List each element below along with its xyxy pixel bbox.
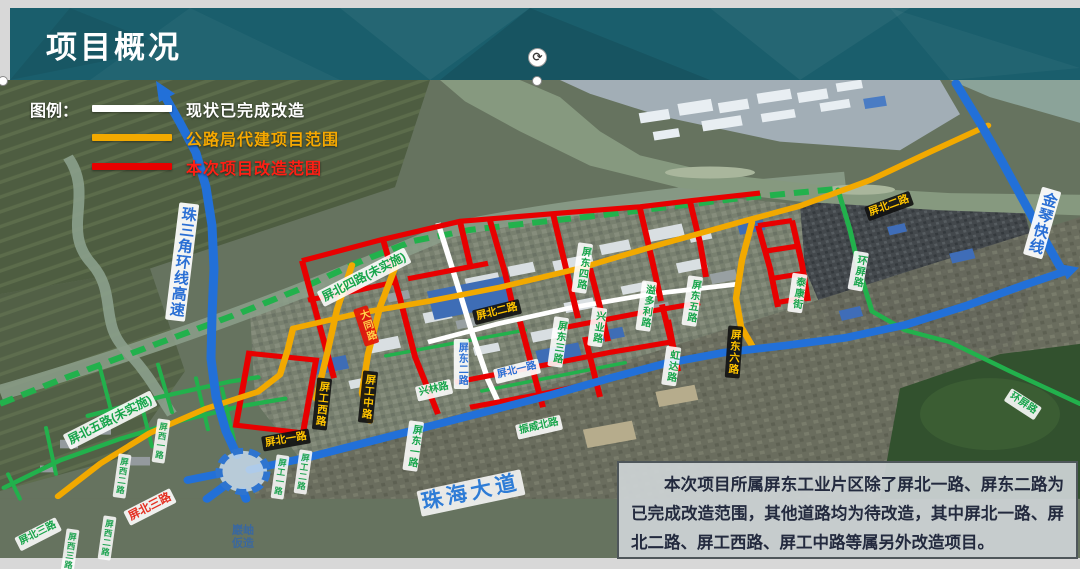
interchange-label: 巖岫 仮造: [232, 524, 254, 549]
legend-label-agency: 公路局代建项目范围: [186, 126, 339, 150]
road-label: 屏东二路: [454, 339, 469, 389]
legend-swatch-agency: [92, 134, 172, 141]
legend-label-current: 本次项目改造范围: [186, 155, 322, 179]
legend: 图例： 现状已完成改造 公路局代建项目范围 本次项目改造范围: [30, 94, 339, 181]
note-text: 本次项目所属屏东工业片区除了屏北一路、屏东二路为已完成改造范围，其他道路均为待改…: [631, 471, 1064, 558]
slide: 图例： 现状已完成改造 公路局代建项目范围 本次项目改造范围 珠三角环线高速金琴…: [0, 0, 1080, 569]
title-banner: 项目概况: [10, 8, 1080, 80]
legend-swatch-completed: [92, 105, 172, 112]
legend-label-completed: 现状已完成改造: [186, 97, 305, 121]
rotate-handle-icon[interactable]: ⟳: [528, 48, 547, 67]
interchange-label-line2: 仮造: [232, 537, 254, 550]
legend-title: 图例：: [30, 97, 92, 121]
interchange-label-line1: 巖岫: [232, 524, 254, 537]
legend-swatch-current: [92, 163, 172, 170]
selection-handle[interactable]: [532, 76, 542, 86]
note-box: 本次项目所属屏东工业片区除了屏北一路、屏东二路为已完成改造范围，其他道路均为待改…: [617, 461, 1078, 559]
page-title: 项目概况: [46, 22, 182, 67]
